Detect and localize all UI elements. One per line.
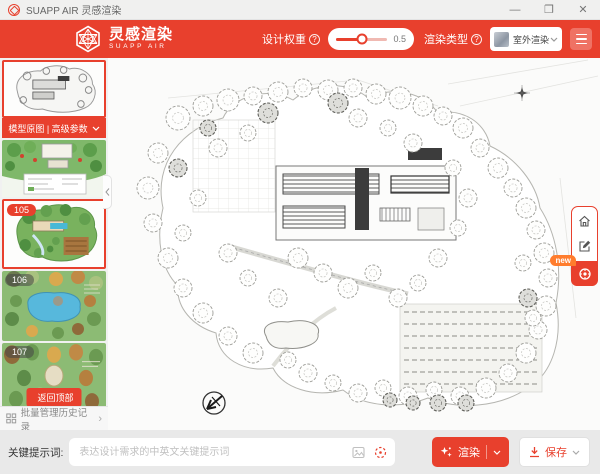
chevron-left-icon <box>105 188 110 196</box>
hamburger-menu-button[interactable] <box>570 28 592 50</box>
render-type-select[interactable]: 室外渲染 <box>490 27 562 51</box>
history-thumbnail-107[interactable]: 107 返回顶部 <box>2 343 106 413</box>
home-button[interactable] <box>574 211 595 232</box>
save-button[interactable]: 保存 <box>519 437 590 467</box>
mode-banner-label: 模型原图 | 高级参数 <box>8 122 87 135</box>
prompt-input-icons <box>352 438 387 466</box>
download-icon <box>529 446 540 458</box>
batch-history-label: 批量管理历史记录 <box>21 405 95 431</box>
render-label: 渲染 <box>458 444 480 460</box>
design-weight-slider[interactable]: 0.5 <box>328 28 414 50</box>
slider-value: 0.5 <box>393 34 406 44</box>
render-type-thumbnail <box>494 32 509 47</box>
history-sidebar: 模型原图 | 高级参数 <box>0 58 108 430</box>
sidebar-collapse-handle[interactable] <box>103 175 112 209</box>
chevron-right-icon: › <box>98 413 102 425</box>
history-thumbnail-106[interactable]: 106 <box>2 271 106 341</box>
brand-name-cn: 灵感渲染 <box>109 27 173 42</box>
window-controls: — ❐ ✕ <box>498 0 600 19</box>
edit-button[interactable] <box>574 236 595 257</box>
close-button[interactable]: ✕ <box>566 0 600 19</box>
app-header: 灵感渲染 SUAPP AIR 设计权重 ? 0.5 渲染类型 ? <box>0 20 600 58</box>
app-window: SUAPP AIR 灵感渲染 — ❐ ✕ 灵感渲染 SUAPP AIR <box>0 0 600 474</box>
app-logo-icon <box>8 4 20 16</box>
chevron-down-icon[interactable] <box>572 450 580 455</box>
history-thumbnail-105[interactable]: 105 <box>2 199 106 269</box>
render-button[interactable]: 渲染 <box>432 437 509 467</box>
prompt-input-wrap <box>69 438 395 466</box>
model-source-thumbnail[interactable] <box>2 60 106 118</box>
home-icon <box>578 215 591 228</box>
brand: 灵感渲染 SUAPP AIR <box>74 25 173 53</box>
site-plan-drawing <box>108 58 600 430</box>
chevron-down-icon <box>92 126 100 131</box>
north-arrow <box>203 392 225 414</box>
grid-icon <box>6 413 17 424</box>
design-weight-text: 设计权重 <box>262 31 306 47</box>
chevron-down-icon <box>550 37 558 42</box>
chevron-down-icon[interactable] <box>493 450 501 455</box>
sparkle-icon <box>440 446 452 458</box>
brand-text: 灵感渲染 SUAPP AIR <box>109 27 173 51</box>
floating-toolbar: new <box>571 206 598 286</box>
design-weight-label: 设计权重 ? <box>262 31 320 47</box>
render-type-value: 室外渲染 <box>513 33 549 46</box>
bottom-bar: 关键提示词: 渲染 <box>0 430 600 474</box>
new-badge: new <box>550 255 576 266</box>
minimize-button[interactable]: — <box>498 0 532 19</box>
back-to-top-label: 返回顶部 <box>37 391 73 404</box>
design-weight-help-icon[interactable]: ? <box>309 34 320 45</box>
compass-star <box>514 85 530 101</box>
history-preview <box>2 140 106 197</box>
thumbnail-badge: 107 <box>5 346 34 358</box>
render-type-help-icon[interactable]: ? <box>471 34 482 45</box>
assistant-logo-icon <box>578 267 592 281</box>
maximize-button[interactable]: ❐ <box>532 0 566 19</box>
titlebar: SUAPP AIR 灵感渲染 — ❐ ✕ <box>0 0 600 20</box>
prompt-input[interactable] <box>69 438 395 466</box>
thumbnail-badge: 105 <box>7 204 36 216</box>
history-thumbnail[interactable] <box>2 140 106 197</box>
slider-track[interactable] <box>336 38 387 41</box>
model-source-preview <box>4 62 104 116</box>
capture-region-icon[interactable] <box>374 446 387 459</box>
prompt-label: 关键提示词: <box>8 445 63 460</box>
edit-icon <box>578 240 591 253</box>
drawing-canvas[interactable]: new <box>108 58 600 430</box>
thumbnail-badge: 106 <box>5 274 34 286</box>
window-title: SUAPP AIR 灵感渲染 <box>26 2 121 17</box>
render-type-label: 渲染类型 ? <box>424 31 482 47</box>
assistant-button[interactable]: new <box>571 261 598 286</box>
slider-handle[interactable] <box>356 34 367 45</box>
brand-name-en: SUAPP AIR <box>109 44 173 51</box>
header-controls: 设计权重 ? 0.5 渲染类型 ? 室外渲染 <box>262 27 592 51</box>
pond <box>264 321 318 349</box>
image-icon[interactable] <box>352 446 365 459</box>
batch-history-bar[interactable]: 批量管理历史记录 › <box>0 406 108 430</box>
render-type-text: 渲染类型 <box>424 31 468 47</box>
brand-hexagon-icon <box>74 25 102 53</box>
save-label: 保存 <box>545 444 567 460</box>
mode-banner[interactable]: 模型原图 | 高级参数 <box>2 118 106 138</box>
render-split-divider <box>486 445 487 459</box>
